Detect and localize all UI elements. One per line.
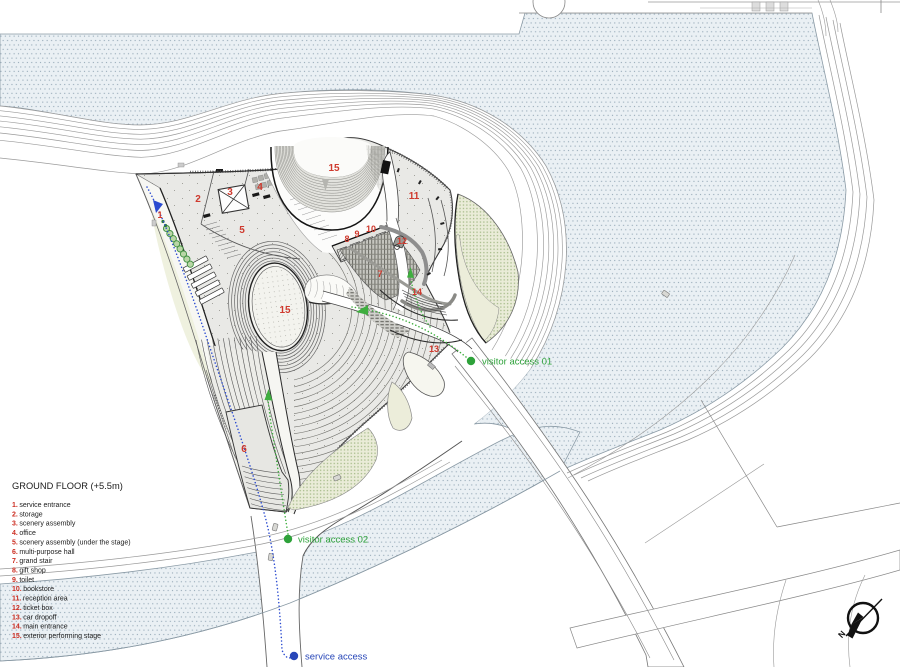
svg-text:3: 3: [227, 187, 233, 198]
svg-text:11.reception area: 11.reception area: [12, 596, 68, 603]
svg-text:9.toilet: 9.toilet: [12, 577, 34, 584]
svg-text:12.ticket box: 12.ticket box: [12, 605, 53, 612]
svg-text:13.car dropoff: 13.car dropoff: [12, 614, 57, 621]
svg-text:6.multi-purpose hall: 6.multi-purpose hall: [12, 549, 75, 556]
svg-text:5: 5: [239, 225, 245, 236]
svg-text:7: 7: [377, 269, 382, 279]
svg-text:4.office: 4.office: [12, 530, 36, 537]
svg-text:2.storage: 2.storage: [12, 511, 43, 518]
svg-text:4: 4: [257, 182, 263, 193]
svg-text:15.exterior performing stage: 15.exterior performing stage: [12, 633, 101, 640]
svg-text:8: 8: [344, 234, 349, 244]
svg-text:9: 9: [354, 229, 359, 239]
svg-text:3.scenery assembly: 3.scenery assembly: [12, 521, 76, 528]
svg-text:8.gift shop: 8.gift shop: [12, 568, 46, 575]
svg-text:service access: service access: [305, 652, 368, 663]
svg-text:1: 1: [157, 210, 162, 220]
svg-text:GROUND FLOOR (+5.5m): GROUND FLOOR (+5.5m): [12, 481, 123, 491]
svg-text:2: 2: [195, 194, 201, 205]
svg-text:15: 15: [328, 163, 340, 174]
svg-text:6: 6: [241, 444, 247, 455]
svg-text:11: 11: [409, 191, 420, 202]
svg-text:10.bookstore: 10.bookstore: [12, 586, 54, 593]
svg-text:visitor access 02: visitor access 02: [298, 535, 368, 546]
svg-text:visitor access 01: visitor access 01: [482, 357, 552, 368]
svg-text:13: 13: [429, 344, 439, 354]
svg-text:10: 10: [366, 224, 376, 234]
svg-text:1.service entrance: 1.service entrance: [12, 502, 71, 509]
svg-text:15: 15: [279, 305, 291, 316]
svg-text:5.scenery assembly (under the: 5.scenery assembly (under the stage): [12, 539, 131, 546]
svg-text:12: 12: [397, 236, 407, 246]
svg-text:14.main entrance: 14.main entrance: [12, 624, 68, 631]
svg-text:14: 14: [412, 287, 422, 297]
